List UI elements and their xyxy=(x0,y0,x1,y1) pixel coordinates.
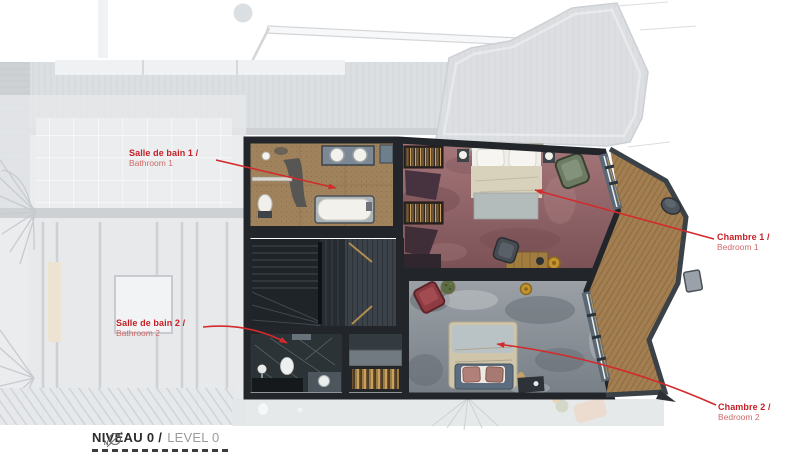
room-bathroom-2 xyxy=(250,334,342,392)
potted-plant xyxy=(441,280,455,294)
annotation-bedroom-1: Chambre 1 / Bedroom 1 xyxy=(717,232,770,253)
annotation-bathroom-1-title: Salle de bain 1 / xyxy=(129,148,198,158)
sink-basin xyxy=(319,376,330,387)
annotation-bedroom-1-subtitle: Bedroom 1 xyxy=(717,243,770,253)
floorplan-rendering xyxy=(0,0,800,465)
floorplan-canvas: Salle de bain 1 / Bathroom 1 Chambre 1 /… xyxy=(0,0,800,465)
level-title-row: NIVEAU 0 / LEVEL 0 N xyxy=(92,430,282,445)
annotation-bathroom-2: Salle de bain 2 / Bathroom 2 xyxy=(116,318,185,339)
toilet xyxy=(281,358,294,375)
staircase xyxy=(249,239,345,327)
annotation-bedroom-2-subtitle: Bedroom 2 xyxy=(718,413,771,423)
annotation-bathroom-1-subtitle: Bathroom 1 xyxy=(129,159,198,169)
vanity xyxy=(252,378,303,392)
north-compass-icon: N xyxy=(102,430,126,450)
active-floor-plan xyxy=(245,140,703,402)
bathtub xyxy=(315,196,374,223)
toilet xyxy=(258,195,272,214)
annotation-bedroom-1-title: Chambre 1 / xyxy=(717,232,770,242)
annotation-bathroom-1: Salle de bain 1 / Bathroom 1 xyxy=(129,148,198,169)
room-bedroom-1 xyxy=(400,143,618,272)
closet xyxy=(349,334,402,392)
bed-2 xyxy=(449,322,525,389)
hallway xyxy=(345,239,396,327)
pedestal-sink xyxy=(258,365,267,374)
annotation-bathroom-2-title: Salle de bain 2 / xyxy=(116,318,185,328)
room-bedroom-2 xyxy=(407,280,609,394)
balcony-step xyxy=(683,270,702,292)
annotation-bedroom-2-title: Chambre 2 / xyxy=(718,402,771,412)
annotation-bathroom-2-subtitle: Bathroom 2 xyxy=(116,329,185,339)
sink-basin xyxy=(330,148,344,162)
ceiling-light xyxy=(262,152,270,160)
annotation-bedroom-2: Chambre 2 / Bedroom 2 xyxy=(718,402,771,423)
level-title-block: NIVEAU 0 / LEVEL 0 N xyxy=(92,430,282,452)
chimney-circle xyxy=(234,4,253,23)
side-table xyxy=(518,376,545,393)
sink-basin xyxy=(353,148,367,162)
level-title-en: LEVEL 0 xyxy=(167,430,219,445)
